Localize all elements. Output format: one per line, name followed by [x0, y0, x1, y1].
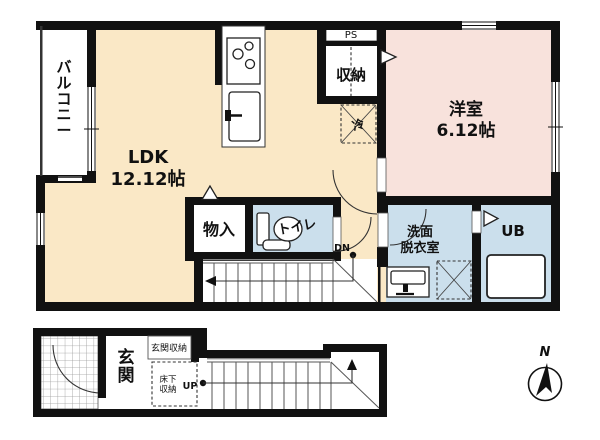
ldk-label: LDK [128, 147, 169, 168]
down-label: DN [334, 243, 350, 254]
washroom-label-1: 洗面 [407, 224, 433, 240]
ps-label: PS [345, 30, 357, 41]
floor1-plan [33, 328, 387, 417]
entrance-label: 玄関 [118, 347, 135, 386]
door-unit-bath [472, 211, 481, 233]
washbasin-icon [387, 267, 429, 297]
underfloor-storage-label-1: 床下 [159, 374, 177, 385]
window-left-ldk [36, 213, 45, 245]
compass: N [529, 345, 562, 401]
unit-bath-label: UB [501, 222, 525, 240]
up-label: UP [183, 381, 198, 392]
kitchen-counter [222, 26, 265, 147]
sink-icon [225, 92, 260, 141]
closet-label: 収納 [336, 66, 366, 84]
door-washroom [378, 213, 388, 247]
floorplan-svg: N バルコニー LDK 12.12帖 PS 収納 冷 洋室 6.12帖 物入 ト… [0, 0, 600, 440]
entrance-tile [41, 336, 98, 409]
bathtub-icon [487, 255, 545, 298]
window-top-western [462, 21, 496, 30]
underfloor-storage-label-2: 収納 [159, 384, 176, 395]
western-room-area-label: 6.12帖 [437, 120, 496, 141]
stove-icon [227, 38, 260, 84]
entrance-storage-label: 玄関収納 [151, 342, 187, 354]
western-room-label: 洋室 [449, 99, 483, 120]
balcony-label: バルコニー [56, 58, 71, 140]
door-western [377, 158, 386, 192]
ldk-area-label: 12.12帖 [111, 168, 186, 190]
washroom-label-2: 脱衣室 [400, 240, 439, 256]
floorplan-page: N バルコニー LDK 12.12帖 PS 収納 冷 洋室 6.12帖 物入 ト… [0, 0, 600, 440]
compass-north-label: N [540, 345, 551, 360]
storage-label: 物入 [203, 220, 235, 239]
